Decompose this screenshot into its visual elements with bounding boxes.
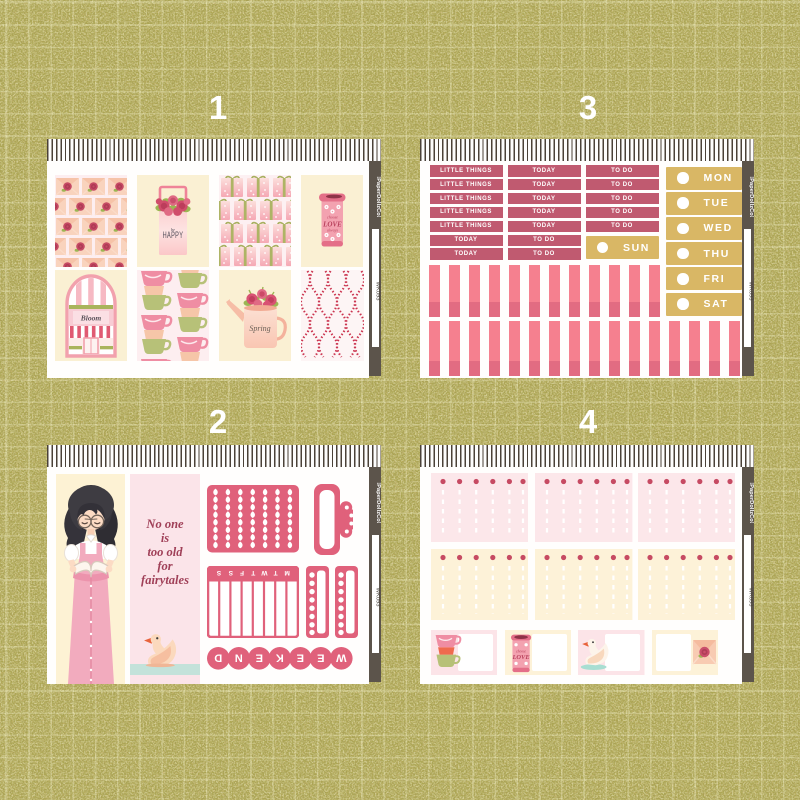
svg-text:E: E [256,651,263,663]
svg-text:always: always [327,228,339,233]
svg-text:WK093: WK093 [375,281,381,300]
svg-text:S: S [228,569,233,576]
svg-text:F: F [240,569,244,576]
svg-text:E: E [317,651,324,663]
svg-text:K: K [276,651,284,663]
svg-text:WK093: WK093 [747,587,753,606]
svg-text:T: T [251,569,255,576]
svg-text:WK093: WK093 [747,281,753,300]
svg-text:E: E [297,651,304,663]
svg-text:T: T [274,569,278,576]
svg-text:S: S [216,569,221,576]
svg-text:⁝PaperDollzCo⁝: ⁝PaperDollzCo⁝ [748,482,754,523]
svg-text:LOVE: LOVE [511,654,530,661]
svg-text:D: D [214,651,222,663]
svg-text:Bloom: Bloom [80,314,102,323]
svg-text:⁝PaperDollzCo⁝: ⁝PaperDollzCo⁝ [748,176,754,217]
svg-text:W: W [335,651,346,663]
svg-text:N: N [235,651,243,663]
svg-text:WK093: WK093 [375,587,381,606]
svg-text:W: W [260,569,267,576]
svg-text:HAPPY: HAPPY [163,229,184,240]
svg-text:M: M [284,569,289,576]
svg-text:Spring: Spring [249,324,270,333]
svg-text:⁝PaperDollzCo⁝: ⁝PaperDollzCo⁝ [375,482,381,523]
svg-text:⁝PaperDollzCo⁝: ⁝PaperDollzCo⁝ [375,176,381,217]
svg-text:choose: choose [516,650,526,654]
svg-text:choose: choose [327,215,338,220]
